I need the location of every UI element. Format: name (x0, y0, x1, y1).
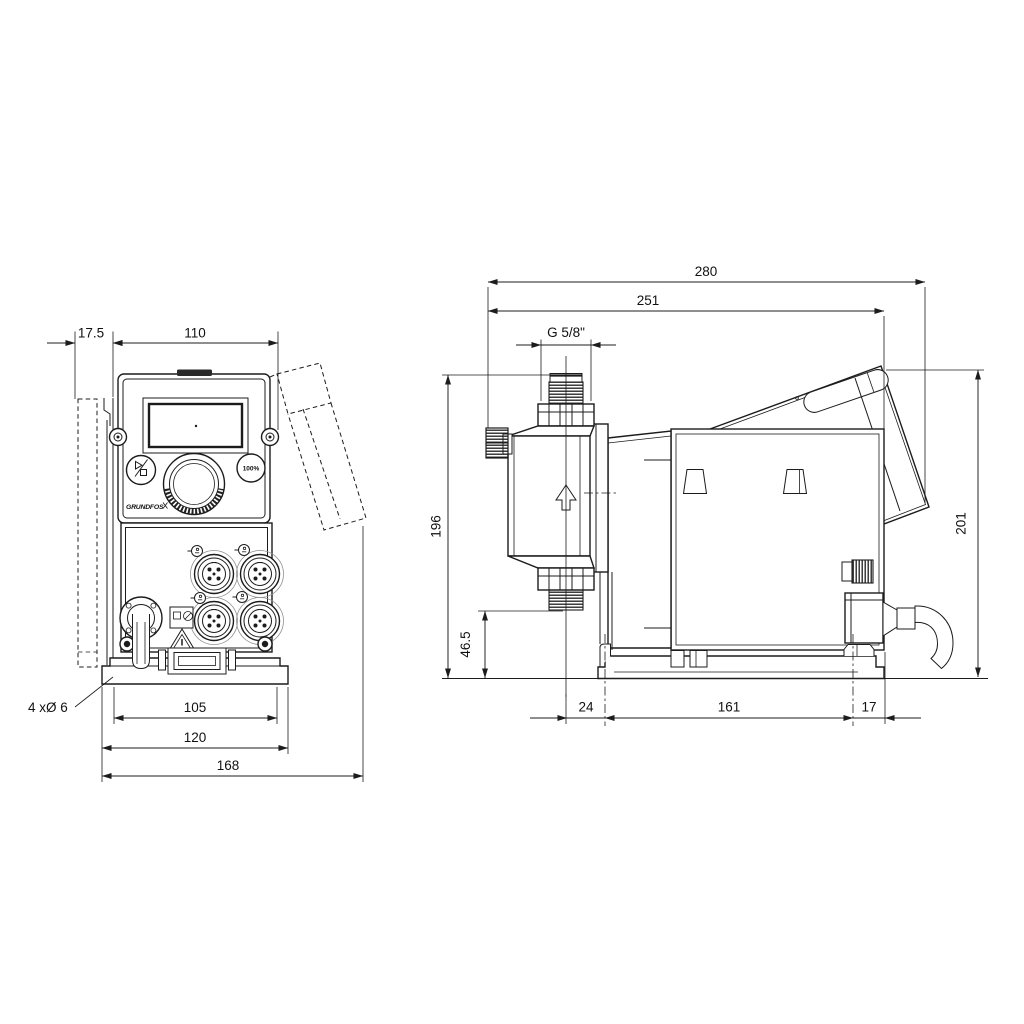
dim-back-offset: 17 (861, 700, 876, 715)
connector-socket[interactable] (191, 551, 238, 598)
housing-screw-left (120, 637, 134, 651)
connector-socket[interactable] (237, 551, 284, 598)
dim-panel-width: 110 (184, 326, 206, 341)
brand-logo: GRUNDFOS (126, 504, 164, 511)
dim-height: 196 (429, 515, 444, 538)
connector-socket[interactable] (191, 598, 238, 645)
dim-total-height: 201 (954, 512, 969, 535)
click-wheel[interactable] (164, 454, 225, 515)
dim-front-offset: 24 (578, 700, 594, 715)
leader-line (75, 677, 113, 707)
front-view: 100% GRUNDFOS (28, 326, 366, 783)
wall-bracket-dashed (78, 399, 97, 667)
dim-wall-offset: 17.5 (78, 326, 104, 341)
control-panel: 100% GRUNDFOS (118, 370, 270, 524)
side-view: 280 251 G 5/8" 196 46.5 201 24 (429, 264, 989, 726)
pump-dimensional-drawing: 100% GRUNDFOS (0, 0, 1024, 1024)
hinge-screw-right (262, 429, 279, 446)
dim-hole-spacing: 105 (184, 700, 207, 715)
mounting-clip (684, 470, 707, 494)
panel-top-tab (177, 370, 212, 377)
start-stop-button[interactable] (127, 456, 156, 485)
head-flange (588, 424, 608, 572)
dim-foot-width: 120 (184, 730, 207, 745)
power-cable-side (915, 606, 953, 669)
body-front-section (608, 431, 671, 648)
note-mounting-holes: 4 xØ 6 (28, 700, 68, 715)
dim-total-width: 168 (217, 758, 240, 773)
percent-button[interactable]: 100% (237, 454, 265, 482)
dim-valve-height: 46.5 (458, 631, 473, 657)
hinge-screw-left (110, 429, 127, 446)
dim-thread-size: G 5/8" (547, 325, 585, 340)
stud-thread (852, 560, 873, 583)
head-body (508, 436, 590, 556)
hood-dashed-front (270, 363, 366, 530)
drawing-canvas: 100% GRUNDFOS (0, 0, 1024, 1024)
mounting-foot-front (102, 648, 288, 684)
dim-depth-no-hood: 251 (637, 293, 660, 308)
percent-button-label: 100% (243, 466, 260, 473)
dim-foot-length: 161 (718, 700, 741, 715)
mounting-clip (784, 470, 807, 494)
power-cable-front (133, 614, 150, 669)
connector-socket[interactable] (237, 598, 284, 645)
dim-total-depth: 280 (695, 264, 718, 279)
housing-screw-right (258, 637, 272, 651)
din-clip (168, 648, 226, 674)
